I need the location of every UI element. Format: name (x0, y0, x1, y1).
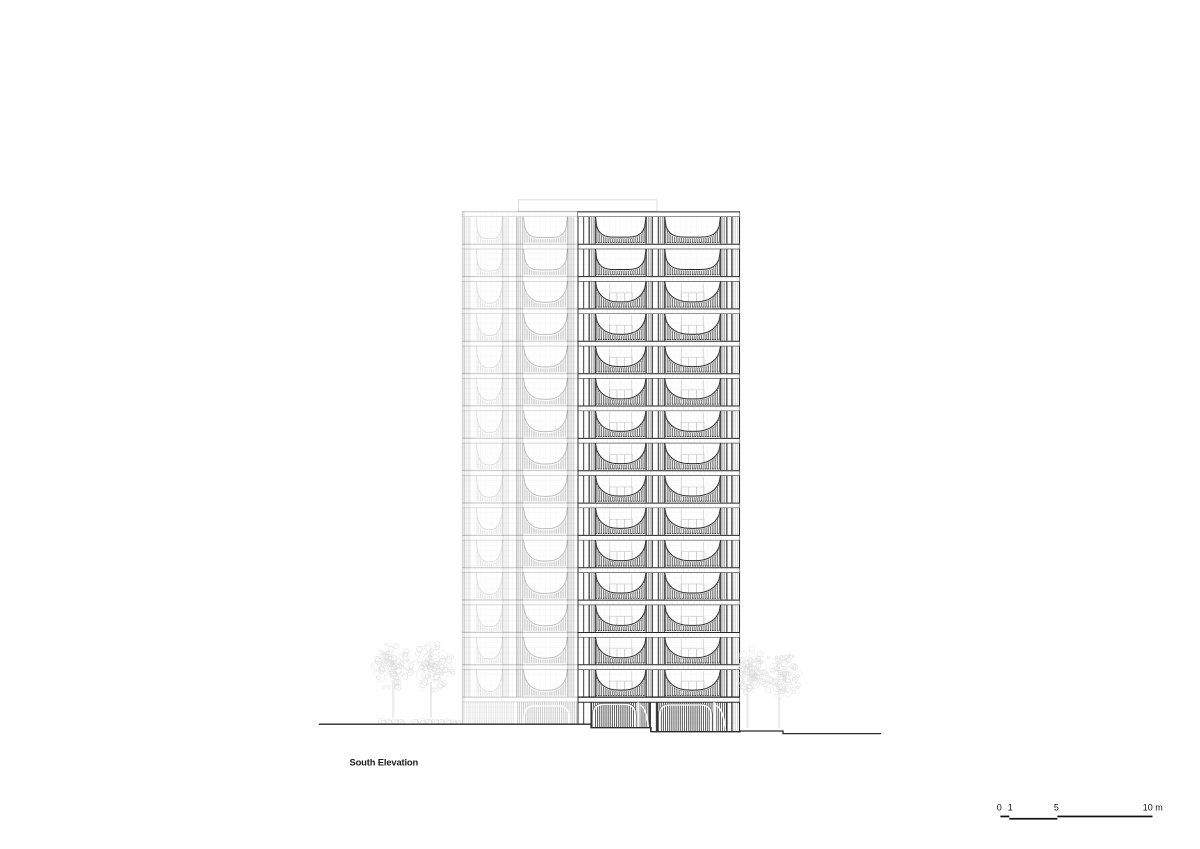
svg-text:5: 5 (1054, 803, 1059, 813)
svg-text:1: 1 (1008, 803, 1013, 813)
svg-text:South Elevation: South Elevation (350, 757, 419, 768)
svg-text:0: 0 (997, 803, 1002, 813)
svg-text:10 m: 10 m (1143, 803, 1163, 813)
